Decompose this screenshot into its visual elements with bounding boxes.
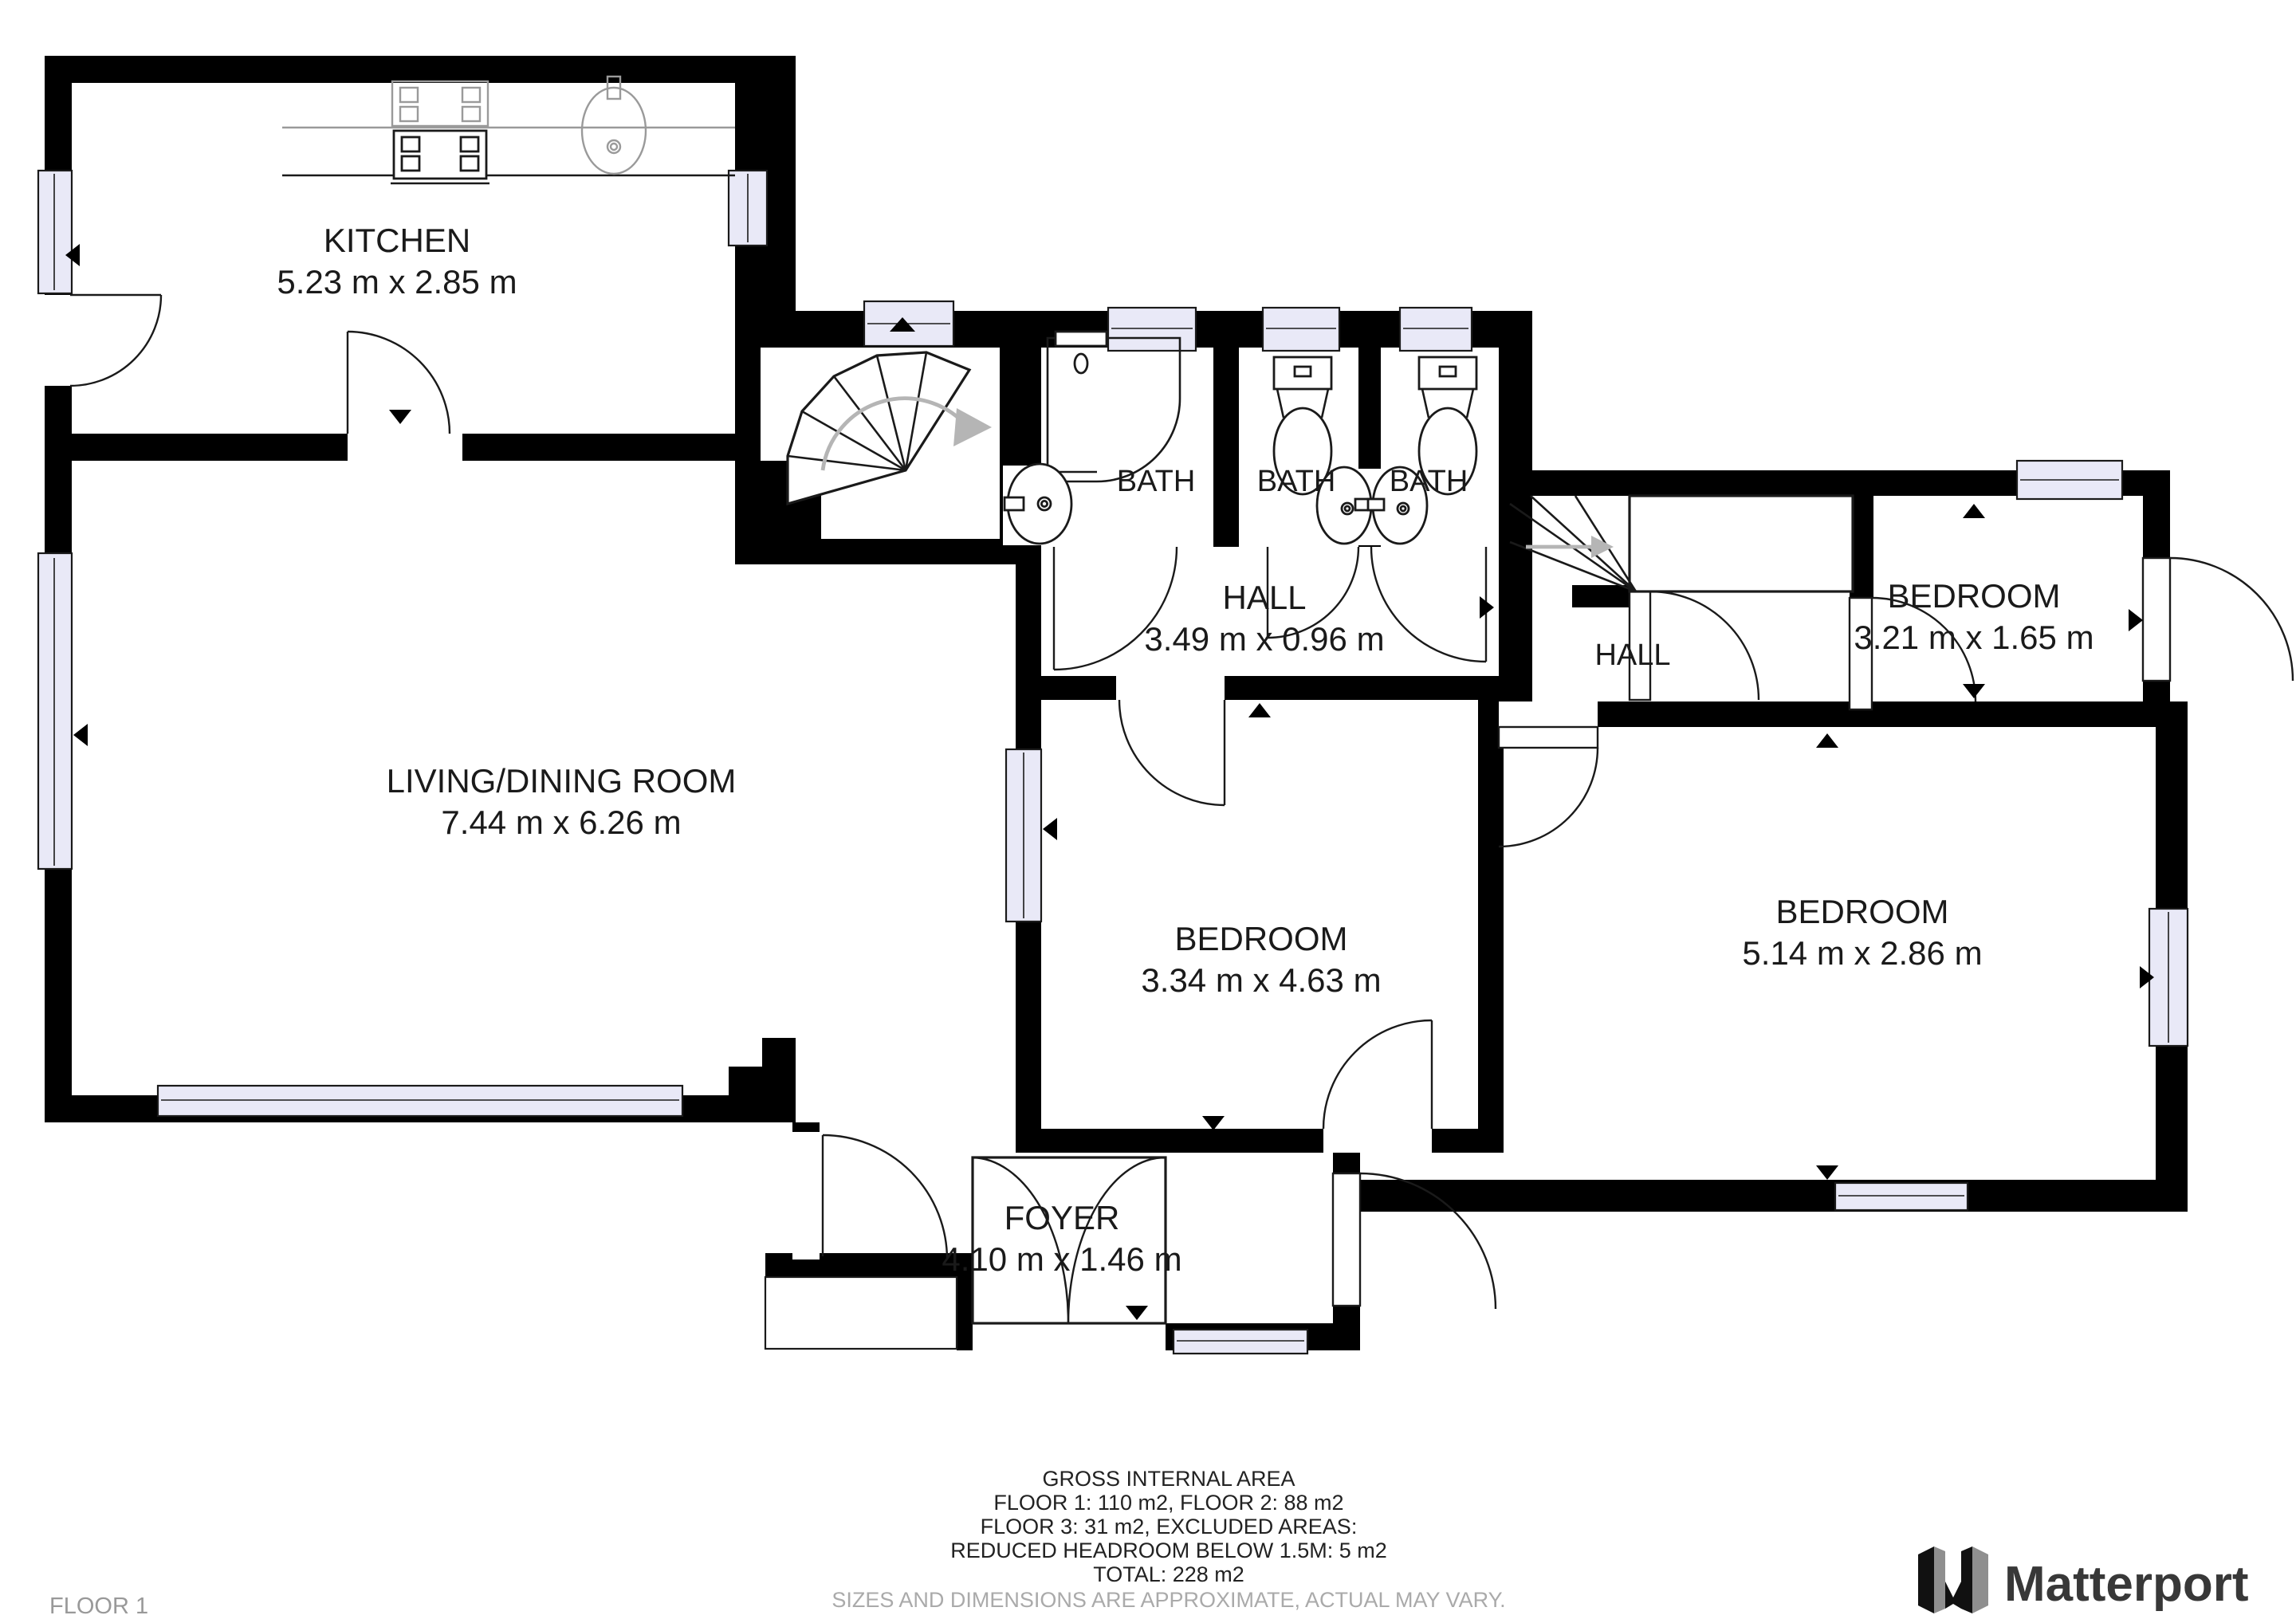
floor-label: FLOOR 1 [49, 1594, 148, 1619]
window [1263, 308, 1339, 351]
window [864, 301, 953, 346]
porch [765, 1277, 957, 1349]
room-label-bedroom-right: BEDROOM [1775, 893, 1948, 930]
sink-icon [1003, 464, 1071, 545]
door-arc [1499, 727, 1598, 847]
room-label-kitchen: KITCHEN [324, 222, 470, 259]
room-label-bedroom-top-right: BEDROOM [1887, 577, 2060, 615]
window [1174, 1330, 1307, 1354]
room-dims-foyer: 4.10 m x 1.46 m [942, 1240, 1181, 1278]
brand-wordmark: Matterport [2004, 1557, 2249, 1612]
room-label-hall-top: HALL [1222, 579, 1306, 616]
shower-icon [1048, 332, 1180, 481]
room-label-bath1: BATH [1117, 465, 1196, 498]
area-summary-line: FLOOR 1: 110 m2, FLOOR 2: 88 m2 [993, 1491, 1343, 1515]
area-summary-line: FLOOR 3: 31 m2, EXCLUDED AREAS: [981, 1515, 1358, 1539]
area-summary-line: TOTAL: 228 m2 [1093, 1562, 1244, 1586]
window [2149, 909, 2188, 1046]
stove-icon [391, 81, 489, 183]
door-arc [1371, 547, 1486, 662]
window [38, 171, 72, 293]
room-dims-hall-top: 3.49 m x 0.96 m [1144, 620, 1384, 658]
window [1400, 308, 1472, 351]
door-arc [2143, 558, 2293, 681]
window [1108, 308, 1196, 351]
door-arc [823, 1135, 947, 1259]
stairs-icon [1510, 496, 1853, 591]
room-label-hall-right: HALL [1594, 639, 1670, 672]
area-summary: GROSS INTERNAL AREA FLOOR 1: 110 m2, FLO… [832, 1467, 1505, 1612]
disclaimer-text: SIZES AND DIMENSIONS ARE APPROXIMATE, AC… [832, 1588, 1505, 1612]
room-dims-kitchen: 5.23 m x 2.85 m [277, 263, 517, 301]
brand-logo: Matterport [1918, 1546, 2249, 1613]
room-dims-bedroom-top-right: 3.21 m x 1.65 m [1854, 619, 2094, 656]
window [1835, 1183, 1968, 1210]
room-label-living: LIVING/DINING ROOM [387, 762, 737, 800]
floor-plan-canvas: KITCHEN 5.23 m x 2.85 m LIVING/DINING RO… [0, 0, 2296, 1623]
kitchen-counter [282, 128, 735, 175]
matterport-logo-icon [1918, 1546, 1988, 1613]
window [1006, 749, 1041, 922]
stairs-spiral-icon [788, 352, 992, 504]
room-label-bedroom-middle: BEDROOM [1174, 920, 1347, 957]
area-summary-title: GROSS INTERNAL AREA [1042, 1467, 1295, 1491]
door-arc [70, 295, 161, 386]
window [158, 1086, 682, 1116]
room-label-foyer: FOYER [1005, 1199, 1120, 1236]
window [2017, 461, 2122, 499]
room-label-bath2: BATH [1257, 465, 1336, 498]
kitchen-sink-icon [582, 77, 646, 174]
door-arc [1323, 1020, 1432, 1129]
window [729, 171, 767, 246]
room-label-bath3: BATH [1390, 465, 1468, 498]
area-summary-line: REDUCED HEADROOM BELOW 1.5M: 5 m2 [950, 1539, 1387, 1562]
window [38, 553, 72, 869]
room-dims-living: 7.44 m x 6.26 m [441, 804, 681, 841]
door-arc [1119, 700, 1225, 805]
room-dims-bedroom-right: 5.14 m x 2.86 m [1742, 934, 1982, 972]
room-dims-bedroom-middle: 3.34 m x 4.63 m [1141, 961, 1381, 999]
